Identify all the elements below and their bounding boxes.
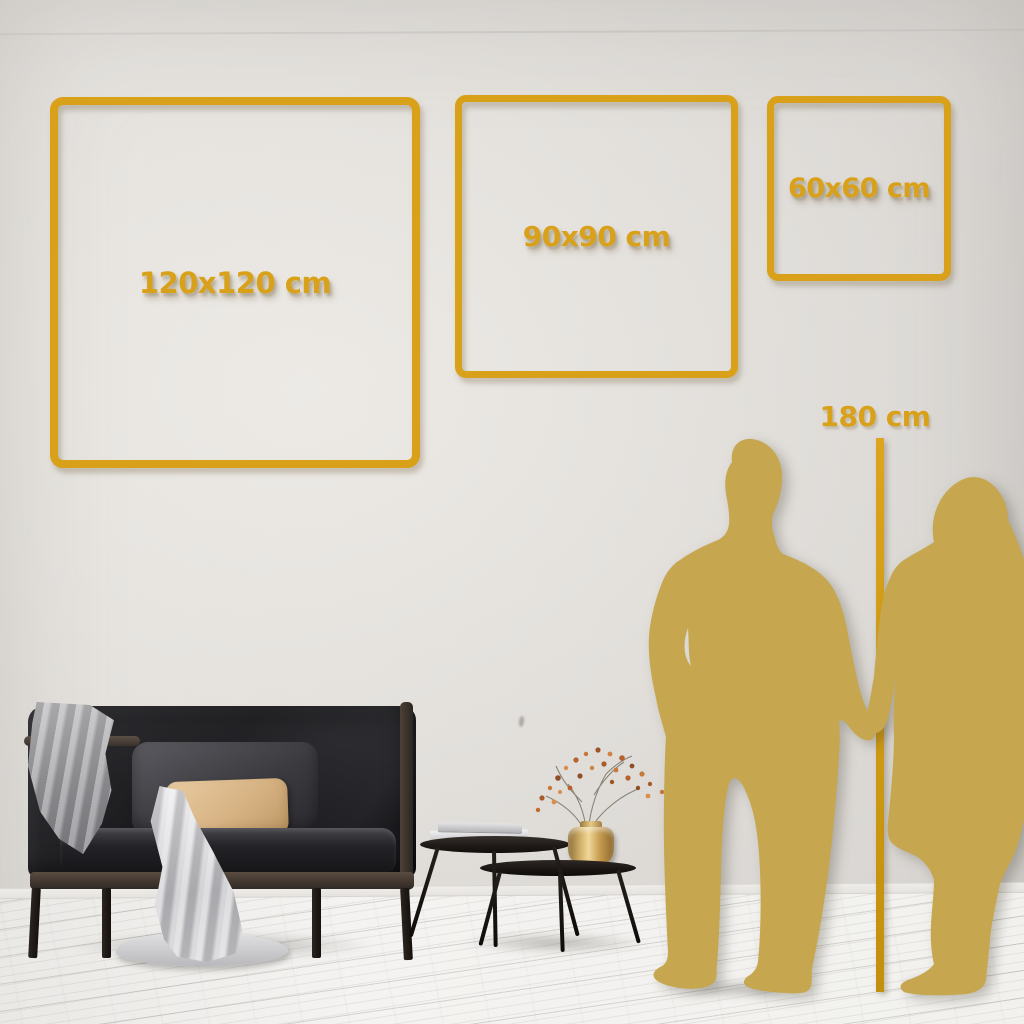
man-silhouette — [649, 439, 876, 993]
size-label-60x60: 60x60 cm — [788, 173, 930, 204]
size-frame-60x60: 60x60 cm — [767, 96, 951, 281]
height-marker-label: 180 cm — [795, 400, 955, 433]
size-label-120x120: 120x120 cm — [139, 266, 331, 300]
table-leg — [478, 871, 502, 945]
size-label-90x90: 90x90 cm — [523, 220, 671, 253]
sofa-leg — [312, 888, 321, 958]
size-frame-120x120: 120x120 cm — [50, 97, 420, 468]
room-scene: 120x120 cm 90x90 cm 60x60 cm — [0, 0, 1024, 1024]
sofa-leg — [28, 888, 41, 958]
woman-silhouette — [866, 477, 1024, 995]
sofa-seat-cushion — [60, 828, 396, 874]
sofa-leg — [400, 888, 413, 960]
sofa — [20, 700, 420, 962]
sofa-leg — [102, 888, 111, 958]
size-frame-90x90: 90x90 cm — [455, 95, 738, 378]
couple-silhouette — [636, 432, 1024, 1012]
sofa-wood-post — [400, 702, 413, 890]
book — [438, 822, 522, 832]
